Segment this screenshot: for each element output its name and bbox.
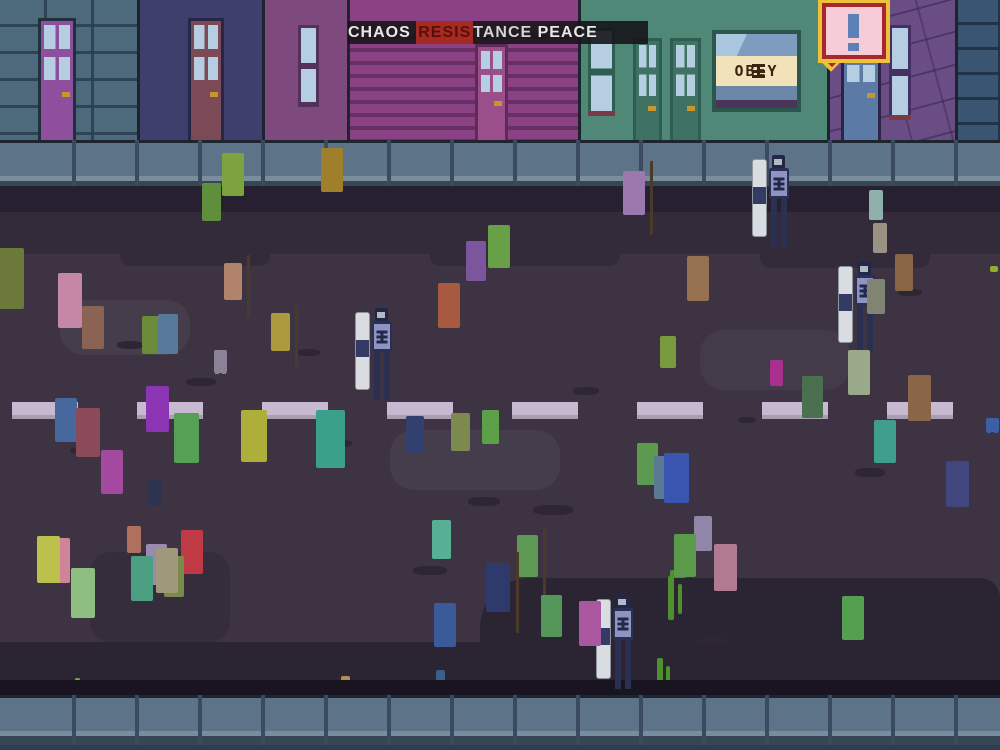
protester[interactable] bbox=[482, 412, 503, 488]
protester-legs bbox=[204, 185, 220, 220]
police-vest bbox=[771, 171, 787, 196]
protester[interactable] bbox=[714, 546, 743, 650]
protester[interactable] bbox=[222, 155, 249, 250]
protester-legs bbox=[160, 316, 177, 351]
protester-legs bbox=[804, 378, 821, 416]
riot-shield bbox=[355, 312, 370, 390]
riot-shield bbox=[838, 266, 853, 343]
protester-legs bbox=[771, 362, 782, 386]
protester[interactable] bbox=[874, 422, 901, 518]
protester-legs bbox=[133, 558, 151, 598]
protester-legs bbox=[436, 605, 454, 644]
protester[interactable] bbox=[202, 185, 226, 270]
protester[interactable] bbox=[488, 227, 515, 322]
protester-legs bbox=[60, 275, 80, 323]
protester-legs bbox=[625, 173, 643, 212]
protester[interactable] bbox=[579, 603, 607, 703]
protester-legs bbox=[897, 256, 912, 289]
protester[interactable] bbox=[986, 420, 1000, 450]
protester-legs bbox=[39, 538, 58, 580]
crowd-layer bbox=[0, 0, 1000, 750]
protester-legs bbox=[910, 377, 929, 418]
protester-legs bbox=[483, 412, 497, 443]
protester[interactable] bbox=[101, 452, 128, 550]
protester-legs bbox=[176, 415, 196, 460]
protester-legs bbox=[490, 227, 508, 265]
protester-legs bbox=[440, 285, 458, 325]
protester[interactable] bbox=[541, 597, 567, 691]
police-officer[interactable] bbox=[752, 155, 796, 247]
protester[interactable] bbox=[517, 537, 543, 631]
baton-icon bbox=[650, 161, 653, 235]
police-helmet bbox=[375, 308, 388, 322]
resistance-label: RESISTANCE bbox=[416, 21, 532, 44]
exclamation-icon-dot bbox=[848, 43, 859, 51]
shop-window-sill bbox=[716, 100, 797, 108]
protester-legs bbox=[224, 155, 242, 193]
protester-legs bbox=[543, 597, 560, 635]
protester[interactable] bbox=[848, 352, 876, 452]
shield-band bbox=[356, 340, 369, 357]
protester[interactable] bbox=[867, 281, 889, 359]
protester[interactable] bbox=[0, 250, 32, 385]
helmet-visor-icon bbox=[618, 599, 626, 605]
protester[interactable] bbox=[406, 418, 429, 500]
helmet-visor-icon bbox=[774, 159, 782, 165]
police-helmet bbox=[616, 595, 629, 609]
protester[interactable] bbox=[271, 315, 295, 400]
protester-legs bbox=[488, 565, 508, 608]
king-emblem-icon bbox=[618, 618, 629, 631]
alert-bubble[interactable] bbox=[822, 3, 886, 59]
protester[interactable] bbox=[224, 265, 247, 347]
protester-legs bbox=[661, 338, 674, 366]
protester[interactable] bbox=[148, 482, 164, 540]
police-torso bbox=[613, 608, 633, 640]
chaos-label: CHAOS bbox=[348, 24, 411, 41]
protester[interactable] bbox=[466, 243, 491, 331]
protester[interactable] bbox=[131, 558, 159, 658]
helmet-visor-icon bbox=[860, 266, 868, 272]
police-legs bbox=[374, 352, 390, 400]
shop-window-glass-lower bbox=[716, 86, 797, 100]
obey-sign-band: OBEY bbox=[716, 56, 797, 86]
protester[interactable] bbox=[674, 536, 701, 632]
protester-legs bbox=[57, 400, 75, 439]
king-emblem-icon bbox=[774, 177, 785, 190]
protester-legs bbox=[870, 192, 882, 219]
shield-band bbox=[753, 187, 766, 204]
protester-legs bbox=[869, 281, 884, 313]
protester-legs bbox=[434, 522, 450, 556]
protester[interactable] bbox=[908, 377, 937, 480]
mood-meter: CHAOS RESISTANCE PEACE bbox=[348, 21, 648, 44]
protester[interactable] bbox=[438, 285, 466, 385]
baton-icon bbox=[295, 305, 298, 369]
protester-legs bbox=[243, 412, 264, 457]
king-emblem-icon bbox=[752, 64, 765, 78]
protester[interactable] bbox=[486, 565, 516, 673]
protester-legs bbox=[78, 410, 98, 453]
protester[interactable] bbox=[432, 522, 456, 608]
police-torso bbox=[769, 168, 789, 199]
exclamation-icon bbox=[848, 14, 859, 38]
protester-legs bbox=[408, 418, 423, 451]
protester-legs bbox=[453, 415, 469, 450]
protester-legs bbox=[215, 352, 226, 374]
shield-band bbox=[839, 294, 852, 311]
protester[interactable] bbox=[687, 258, 715, 358]
protester-legs bbox=[103, 452, 121, 491]
protester-legs bbox=[73, 570, 93, 615]
protester[interactable] bbox=[321, 150, 348, 248]
police-legs bbox=[771, 199, 787, 247]
helmet-visor-icon bbox=[377, 312, 385, 318]
protester-legs bbox=[148, 388, 167, 429]
police-vest bbox=[615, 611, 631, 637]
protester[interactable] bbox=[82, 308, 109, 403]
protester[interactable] bbox=[802, 378, 828, 472]
protester-legs bbox=[158, 550, 176, 590]
protester-legs bbox=[844, 598, 862, 637]
protester-legs bbox=[850, 352, 868, 392]
protester-legs bbox=[676, 536, 694, 575]
police-helmet bbox=[772, 155, 785, 169]
protester-legs bbox=[689, 258, 707, 298]
protester-legs bbox=[128, 528, 139, 553]
police-torso bbox=[372, 321, 392, 352]
peace-label: PEACE bbox=[538, 24, 598, 41]
game-viewport[interactable]: OBEY CHAOS RESISTANCE PEACE bbox=[0, 0, 1000, 750]
protester-legs bbox=[149, 482, 160, 506]
protester[interactable] bbox=[946, 463, 975, 566]
king-emblem-icon bbox=[377, 330, 388, 343]
protester-legs bbox=[319, 412, 343, 462]
protester[interactable] bbox=[37, 538, 66, 643]
baton-icon bbox=[543, 526, 546, 597]
protester[interactable] bbox=[434, 605, 461, 703]
protester[interactable] bbox=[770, 362, 786, 420]
resistance-highlight: RESIS bbox=[416, 21, 473, 44]
protester-legs bbox=[519, 537, 536, 575]
protester-legs bbox=[581, 603, 599, 643]
protester-legs bbox=[948, 463, 967, 504]
protester[interactable] bbox=[241, 412, 273, 527]
protester-legs bbox=[226, 265, 241, 298]
baton-icon bbox=[516, 552, 519, 633]
protester[interactable] bbox=[214, 352, 230, 404]
obey-shop-sign: OBEY bbox=[712, 30, 801, 112]
protester[interactable] bbox=[71, 570, 101, 682]
protester-legs bbox=[273, 315, 289, 350]
baton-icon bbox=[247, 255, 250, 317]
protester[interactable] bbox=[842, 598, 869, 696]
protester-legs bbox=[323, 150, 341, 189]
police-vest bbox=[374, 324, 390, 349]
protester-legs bbox=[0, 250, 22, 303]
protester[interactable] bbox=[316, 412, 352, 540]
protester[interactable] bbox=[660, 338, 680, 408]
protester-legs bbox=[84, 308, 102, 346]
protester-legs bbox=[666, 455, 686, 498]
police-helmet bbox=[858, 262, 871, 276]
police-legs bbox=[615, 640, 631, 689]
protester-legs bbox=[876, 422, 894, 461]
protester-legs bbox=[987, 420, 998, 433]
protester-legs bbox=[874, 225, 886, 252]
protester[interactable] bbox=[174, 415, 205, 527]
protester[interactable] bbox=[895, 256, 918, 338]
protester[interactable] bbox=[156, 550, 184, 650]
protester-legs bbox=[716, 546, 735, 587]
riot-shield bbox=[752, 159, 767, 237]
protester[interactable] bbox=[451, 415, 475, 500]
shop-window-glass bbox=[716, 34, 797, 56]
protester[interactable] bbox=[146, 388, 175, 491]
police-officer[interactable] bbox=[355, 308, 399, 400]
protester[interactable] bbox=[623, 173, 650, 271]
protester-legs bbox=[468, 243, 485, 278]
